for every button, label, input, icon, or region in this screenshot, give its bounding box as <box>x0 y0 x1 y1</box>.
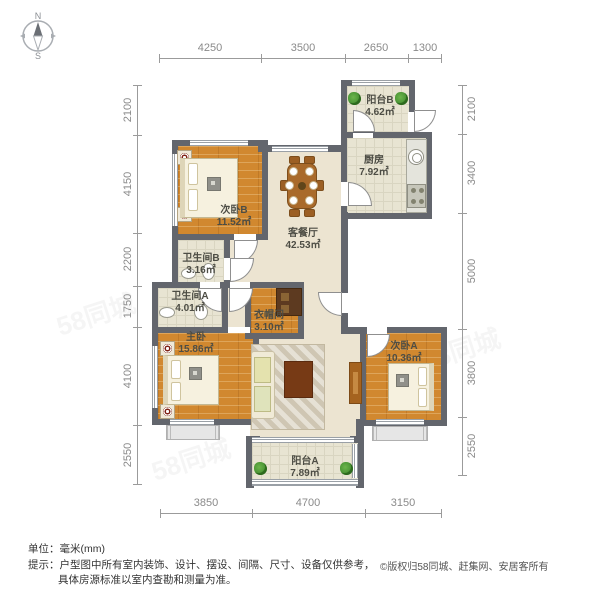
room-label-balcony-a: 阳台A 7.89㎡ <box>290 456 319 480</box>
dim-label: 4700 <box>296 497 320 509</box>
door-opening <box>367 327 387 334</box>
room-label-bedroom-a: 次卧A 10.36㎡ <box>386 341 421 365</box>
copyright-text: ©版权归58同城、赶集网、安居客所有 <box>380 558 549 573</box>
window <box>352 444 358 478</box>
nightstand-lamp-icon <box>160 404 175 419</box>
balcony-rail <box>252 479 358 486</box>
plate <box>309 181 318 190</box>
window <box>376 419 424 425</box>
cushion <box>254 357 271 383</box>
coffee-table-icon <box>284 361 313 398</box>
dim-label: 4150 <box>122 172 134 196</box>
plant-icon <box>340 462 353 475</box>
blanket-icon <box>396 374 409 387</box>
plate <box>305 196 314 205</box>
room-name: 厨房 <box>359 155 388 167</box>
door-opening <box>353 133 373 138</box>
blanket-icon <box>207 177 221 191</box>
window <box>272 146 328 152</box>
door-opening <box>341 293 348 313</box>
pillow <box>171 360 181 379</box>
room-label-bedroom-b: 次卧B 11.52㎡ <box>217 205 251 229</box>
nightstand-lamp-icon <box>160 341 175 356</box>
compass-icon: N S <box>14 8 62 60</box>
sink-icon <box>408 149 424 165</box>
room-area: 3.16㎡ <box>182 265 219 277</box>
dim-label: 3500 <box>291 42 315 54</box>
bay-window <box>372 426 428 441</box>
compass-north-label: N <box>35 11 42 21</box>
plant-icon <box>254 462 267 475</box>
plate <box>289 196 298 205</box>
door-arc-balcony-b-ext <box>414 110 436 132</box>
room-area: 15.86㎡ <box>178 344 213 356</box>
sliding-door <box>252 437 354 443</box>
room-area: 4.62㎡ <box>365 107 394 119</box>
pillow <box>418 388 427 407</box>
dimension-line-top: 4250 3500 2650 1300 <box>159 58 442 59</box>
room-area: 10.36㎡ <box>386 353 421 365</box>
room-area: 4.01㎡ <box>171 303 208 315</box>
compass-south-label: S <box>35 51 41 60</box>
tv-stand-icon <box>349 362 362 404</box>
dimension-line-bottom: 3850 4700 3150 <box>160 513 442 514</box>
room-name: 次卧B <box>217 205 251 217</box>
dim-label: 2650 <box>364 42 388 54</box>
room-label-master-bedroom: 主卧 15.86㎡ <box>178 332 213 356</box>
window <box>152 346 158 408</box>
bed-icon <box>388 363 434 411</box>
room-label-closet: 衣帽间 3.10㎡ <box>254 310 284 334</box>
dim-label: 3400 <box>466 161 478 185</box>
dimension-line-right: 2100 3400 5000 3800 2550 <box>462 85 463 476</box>
wall-segment <box>341 212 348 293</box>
dim-label: 2550 <box>122 443 134 467</box>
dim-label: 2200 <box>122 247 134 271</box>
room-area: 7.92㎡ <box>359 167 388 179</box>
room-name: 阳台B <box>365 95 394 107</box>
plate <box>305 167 314 176</box>
room-label-bathroom-b: 卫生间B 3.16㎡ <box>182 253 219 277</box>
tip-content: 户型图中所有室内装饰、设计、摆设、间隔、尺寸、设备仅供参考， <box>60 559 375 571</box>
room-label-bathroom-a: 卫生间A 4.01㎡ <box>171 291 208 315</box>
room-area: 7.89㎡ <box>290 468 319 480</box>
room-name: 卫生间B <box>182 253 219 265</box>
tip-label: 提示： <box>28 559 60 571</box>
stove-icon <box>407 184 426 208</box>
plate <box>289 167 298 176</box>
dim-label: 2100 <box>466 97 478 121</box>
window <box>190 140 248 146</box>
pillow <box>188 189 198 211</box>
pillow <box>418 367 427 386</box>
plate <box>285 181 294 190</box>
room-name: 次卧A <box>386 341 421 353</box>
dim-label: 1300 <box>413 42 437 54</box>
room-label-balcony-b: 阳台B 4.62㎡ <box>365 95 394 119</box>
cushion <box>254 386 271 412</box>
room-area: 11.52㎡ <box>217 217 251 229</box>
room-area: 3.10㎡ <box>254 322 284 334</box>
chair-icon <box>289 209 300 217</box>
room-name: 主卧 <box>178 332 213 344</box>
dim-label: 2100 <box>122 98 134 122</box>
pillow <box>188 163 198 185</box>
dim-label: 3850 <box>194 497 218 509</box>
dimension-line-left: 2100 4150 2200 1750 4100 2550 <box>137 85 138 485</box>
room-name: 客餐厅 <box>285 228 320 240</box>
room-area: 42.53㎡ <box>285 240 320 252</box>
dim-label: 2550 <box>466 434 478 458</box>
floor-plan: 58同城 58同城 58同城 58同城 N S <box>0 0 600 600</box>
unit-label: 单位：毫米(mm) <box>28 541 105 556</box>
room-name: 卫生间A <box>171 291 208 303</box>
plant-icon <box>348 92 361 105</box>
room-label-kitchen: 厨房 7.92㎡ <box>359 155 388 179</box>
dim-label: 5000 <box>466 259 478 283</box>
blanket-icon <box>189 367 202 380</box>
dim-label: 3150 <box>391 497 415 509</box>
bay-window <box>166 425 220 440</box>
pillow <box>171 382 181 401</box>
chair-icon <box>304 209 315 217</box>
room-label-living-room: 客餐厅 42.53㎡ <box>285 228 320 252</box>
dim-label: 4250 <box>198 42 222 54</box>
tip-text-line2: 具体房源标准以室内查勘和测量为准。 <box>58 572 237 587</box>
plant-icon <box>395 92 408 105</box>
dim-label: 3800 <box>466 361 478 385</box>
tip-text-line1: 提示：户型图中所有室内装饰、设计、摆设、间隔、尺寸、设备仅供参考， <box>28 557 375 572</box>
centerpiece-icon <box>298 182 306 190</box>
window <box>352 80 400 86</box>
door-opening <box>228 327 250 333</box>
dim-label: 1750 <box>122 294 134 318</box>
door-opening <box>341 182 348 206</box>
dim-label: 4100 <box>122 364 134 388</box>
room-name: 衣帽间 <box>254 310 284 322</box>
room-name: 阳台A <box>290 456 319 468</box>
